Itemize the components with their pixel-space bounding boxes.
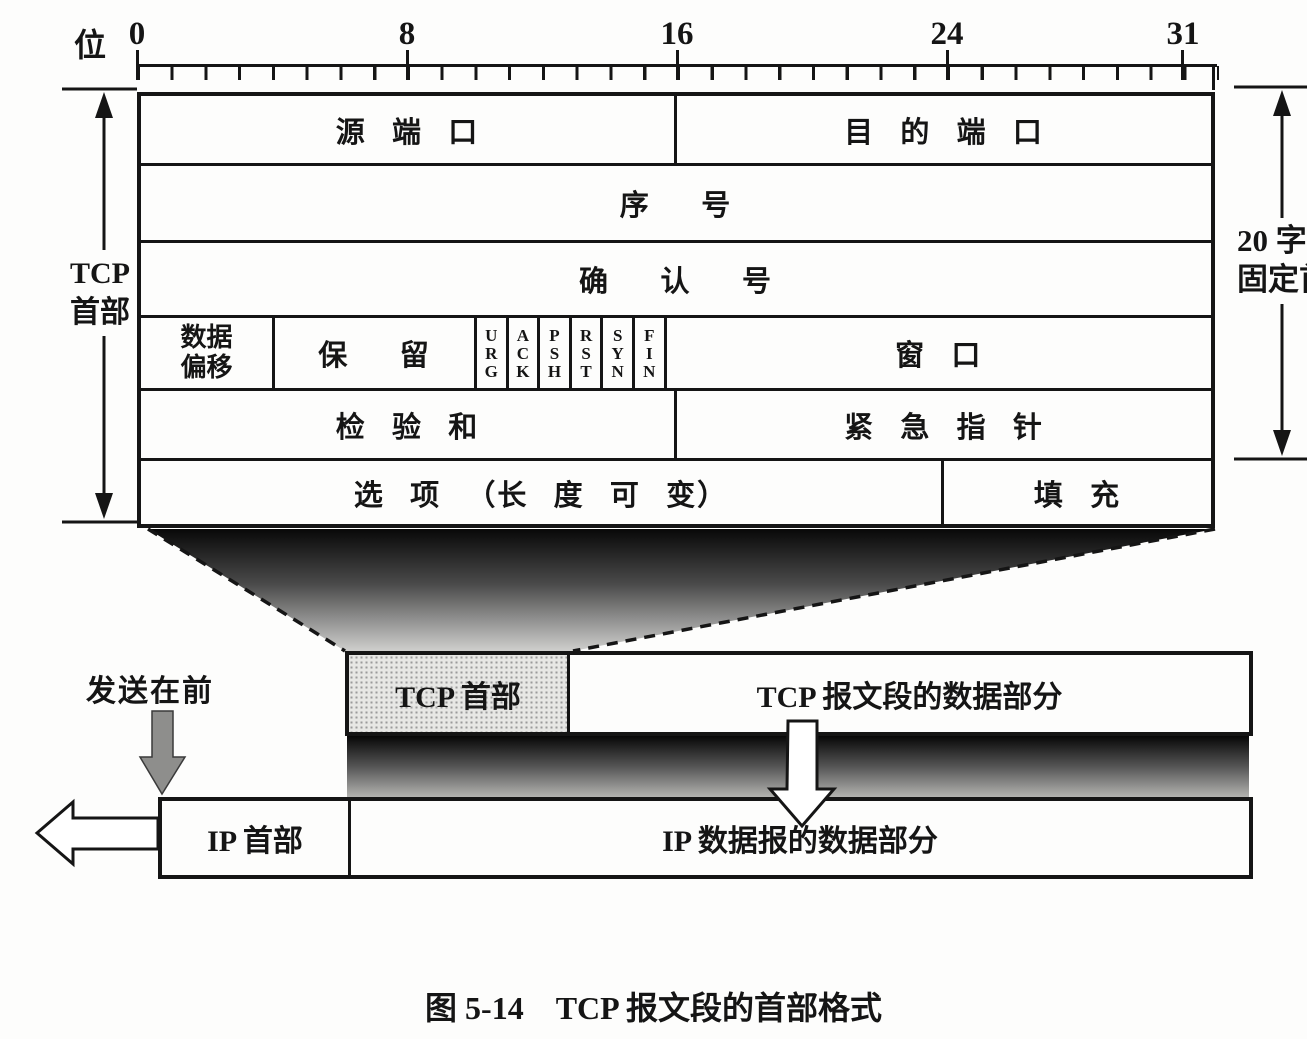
cell-flag-urg: URG	[474, 318, 506, 388]
cell-options: 选 项 （长 度 可 变）	[141, 461, 941, 524]
seq-no-label: 序 号	[620, 182, 733, 224]
source-port-label: 源 端 口	[336, 109, 480, 151]
cell-urgent-pointer: 紧 急 指 针	[674, 391, 1211, 458]
bit-label-16: 16	[647, 16, 707, 53]
row-seq: 序 号	[141, 163, 1211, 240]
tcp-header-table: 源 端 口 目 的 端 口 序 号 确 认 号 数据 偏移	[137, 92, 1215, 528]
up-arrow-icon	[95, 92, 113, 118]
row-checksum: 检 验 和 紧 急 指 针	[141, 388, 1211, 458]
figure-tcp-header-format: 位 0 8 16 24 31 源 端 口 目 的 端 口 序 号 确 认 号	[0, 0, 1307, 1039]
row-options: 选 项 （长 度 可 变） 填 充	[141, 458, 1211, 524]
padding-label: 填 充	[1034, 472, 1121, 514]
cell-flag-ack: ACK	[506, 318, 538, 388]
cell-padding: 填 充	[941, 461, 1211, 524]
ip-header-cell: IP 首部	[162, 801, 348, 875]
fixed-header-brace-label: 20 字节 固定首部	[1237, 221, 1307, 299]
send-first-down-arrow-icon	[140, 711, 185, 794]
ip-data-cell: IP 数据报的数据部分	[348, 801, 1249, 875]
tcp-segment-box: TCP 首部 TCP 报文段的数据部分	[345, 651, 1253, 736]
options-label: 选 项 （长 度 可 变）	[354, 472, 728, 514]
checksum-label: 检 验 和	[336, 404, 480, 446]
cell-ack-no: 确 认 号	[141, 243, 1211, 315]
ip-data-label: IP 数据报的数据部分	[662, 816, 938, 860]
dest-port-label: 目 的 端 口	[844, 109, 1044, 151]
cell-flag-psh: PSH	[537, 318, 569, 388]
cell-seq-no: 序 号	[141, 166, 1211, 240]
bit-unit-label: 位	[74, 20, 106, 66]
tcp-segment-data-label: TCP 报文段的数据部分	[757, 672, 1063, 716]
transmit-left-arrow-icon	[37, 802, 158, 864]
urgent-pointer-label: 紧 急 指 针	[844, 404, 1044, 446]
ruler-major-tick	[136, 50, 139, 80]
funnel-dashed-right	[573, 529, 1215, 651]
data-offset-label: 数据 偏移	[180, 323, 232, 383]
cell-reserved: 保 留	[272, 318, 474, 388]
cell-checksum: 检 验 和	[141, 391, 674, 458]
cell-dest-port: 目 的 端 口	[674, 96, 1211, 163]
encapsulation-band	[347, 736, 1249, 797]
down-arrow-icon	[95, 493, 113, 519]
ruler-major-tick	[676, 50, 679, 80]
bit-label-0: 0	[107, 16, 167, 53]
funnel-dashed-left	[148, 529, 345, 651]
ruler-major-tick	[946, 50, 949, 80]
bit-label-31: 31	[1153, 16, 1213, 53]
ruler-major-tick	[1181, 50, 1184, 80]
down-arrow-icon	[1273, 430, 1291, 456]
flag-urg-label: URG	[483, 326, 500, 380]
cell-window: 窗 口	[664, 318, 1211, 388]
bit-label-8: 8	[377, 16, 437, 53]
cell-flag-syn: SYN	[600, 318, 632, 388]
flag-psh-label: PSH	[546, 326, 563, 380]
figure-caption: 图 5-14 TCP 报文段的首部格式	[0, 983, 1307, 1029]
flag-rst-label: RST	[578, 326, 595, 380]
ruler-end-tick	[1212, 64, 1215, 90]
ip-header-label: IP 首部	[207, 816, 303, 860]
cell-flag-rst: RST	[569, 318, 601, 388]
flag-fin-label: FIN	[641, 326, 658, 380]
ruler-major-tick	[406, 50, 409, 80]
ack-no-label: 确 认 号	[579, 258, 773, 300]
bit-label-24: 24	[917, 16, 977, 53]
ip-datagram-box: IP 首部 IP 数据报的数据部分	[158, 797, 1253, 879]
tcp-segment-header-label: TCP 首部	[395, 672, 521, 716]
cell-flag-fin: FIN	[632, 318, 664, 388]
up-arrow-icon	[1273, 90, 1291, 116]
tcp-segment-data-cell: TCP 报文段的数据部分	[567, 655, 1249, 732]
send-first-label: 发送在前	[86, 666, 214, 710]
flag-syn-label: SYN	[609, 326, 626, 380]
row-ack: 确 认 号	[141, 240, 1211, 315]
reserved-label: 保 留	[318, 332, 431, 374]
cell-source-port: 源 端 口	[141, 96, 674, 163]
cell-data-offset: 数据 偏移	[141, 318, 272, 388]
zoom-funnel-shape	[148, 529, 1215, 651]
window-label: 窗 口	[895, 332, 982, 374]
flag-ack-label: ACK	[514, 326, 531, 380]
tcp-segment-header-cell: TCP 首部	[349, 655, 567, 732]
row-flags: 数据 偏移 保 留 URG ACK PSH RST SYN	[141, 315, 1211, 388]
row-ports: 源 端 口 目 的 端 口	[141, 96, 1211, 163]
tcp-header-brace-label: TCP 首部	[58, 254, 142, 332]
